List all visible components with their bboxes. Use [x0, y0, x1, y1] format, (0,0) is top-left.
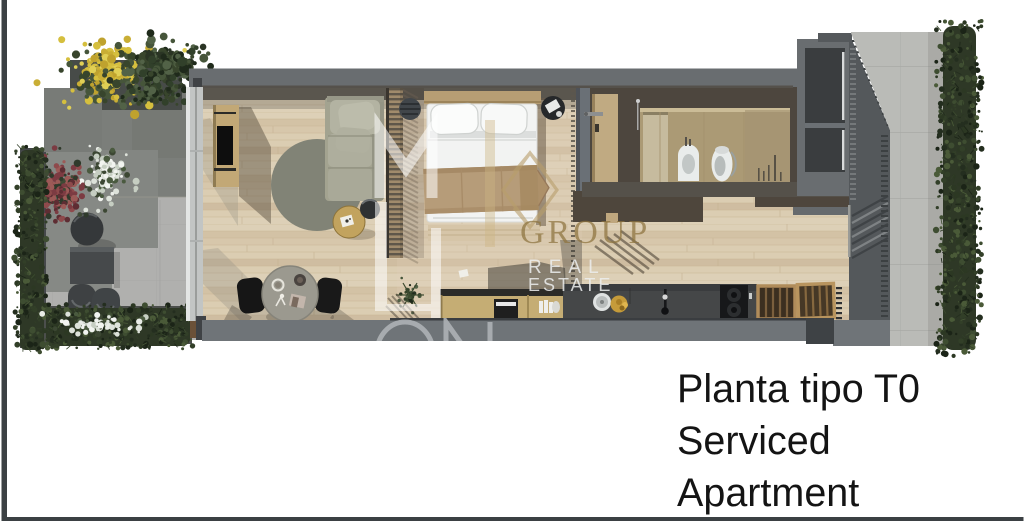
- svg-text:GROUP: GROUP: [520, 214, 650, 251]
- svg-text:Serviced: Serviced: [677, 419, 831, 463]
- svg-text:Apartment: Apartment: [677, 471, 859, 515]
- svg-text:Planta tipo T0: Planta tipo T0: [677, 367, 920, 411]
- svg-text:ESTATE: ESTATE: [528, 275, 613, 295]
